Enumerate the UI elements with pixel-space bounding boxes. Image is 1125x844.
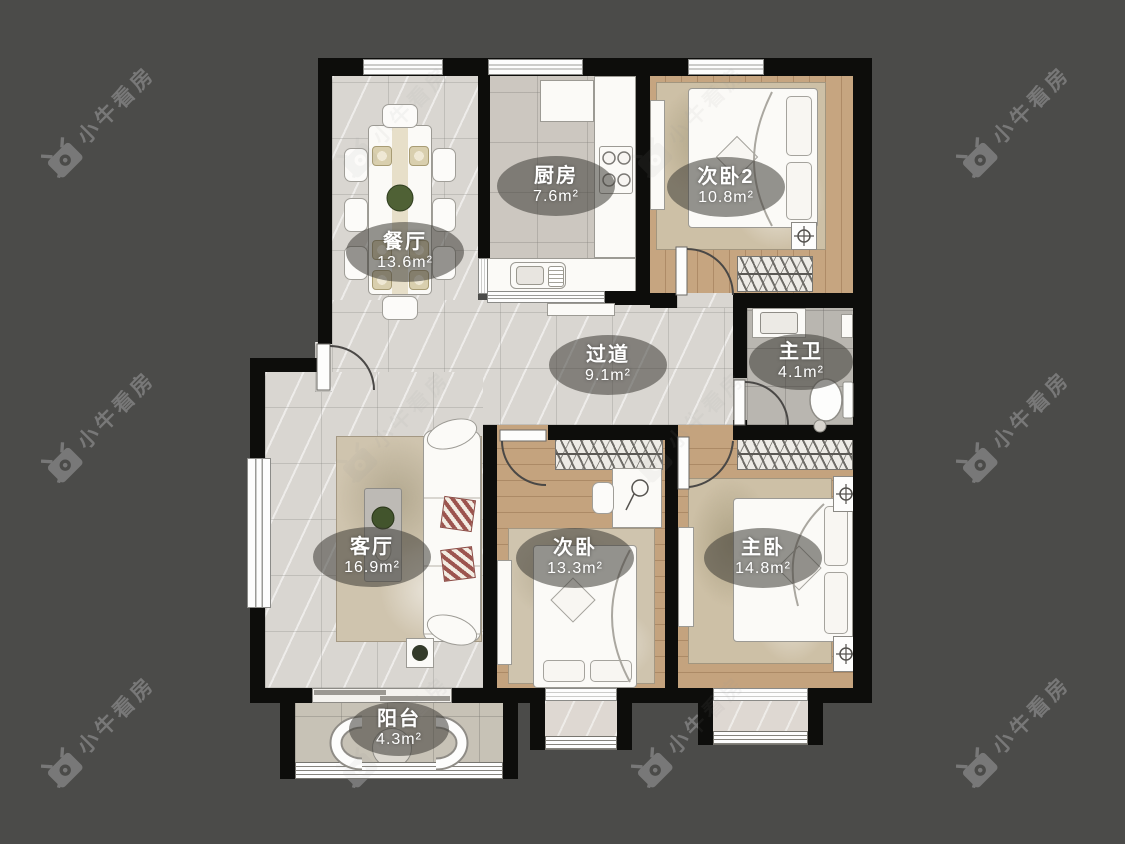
kitchen-sink-bowl — [516, 266, 544, 285]
floor-bedroom2-door-gap — [677, 293, 733, 308]
room-label-hallway: 过道 9.1m² — [549, 335, 667, 395]
watermark: 小牛看房 — [36, 361, 165, 490]
watermark-text: 小牛看房 — [985, 58, 1077, 150]
room-name: 主卫 — [779, 341, 823, 363]
wall-bedroom2-bottom — [650, 293, 677, 308]
pillow — [824, 506, 848, 566]
wall-bath-top — [733, 293, 853, 308]
floor-second-bedroom-door-gap — [497, 425, 548, 440]
window-kitchen — [488, 59, 583, 75]
cabinet-second-bedroom — [497, 560, 512, 665]
pillow — [824, 572, 848, 634]
kitchen-door-threshold — [547, 303, 615, 316]
room-name: 厨房 — [534, 165, 578, 187]
room-area: 7.6m² — [533, 187, 579, 206]
room-area: 14.8m² — [735, 559, 791, 578]
watermark: 小牛看房 — [951, 56, 1080, 185]
room-area: 4.1m² — [778, 363, 824, 382]
bay-window-1-rail — [545, 736, 617, 750]
place-setting — [409, 146, 429, 166]
room-label-second-bedroom: 次卧 13.3m² — [516, 528, 634, 588]
floorplan-canvas: 小牛看房小牛看房小牛看房小牛看房小牛看房小牛看房小牛看房小牛看房小牛看房小牛看房… — [0, 0, 1125, 844]
room-name: 客厅 — [350, 536, 394, 558]
watermark: 小牛看房 — [36, 666, 165, 795]
wardrobe-master-bedroom — [737, 437, 853, 470]
room-name: 次卧2 — [697, 166, 754, 188]
room-label-dining: 餐厅 13.6m² — [346, 222, 464, 282]
bay-window-2-rail — [713, 731, 808, 745]
dining-chair — [432, 148, 456, 182]
window-living-left — [247, 458, 271, 608]
room-name: 餐厅 — [383, 231, 427, 253]
glass-partition-kitchen — [478, 258, 488, 294]
wall-living-secondbedroom — [483, 440, 497, 703]
room-area: 10.8m² — [698, 188, 754, 207]
wall-dining-kitchen — [478, 58, 490, 258]
pillow — [786, 162, 812, 220]
kitchen-dish-rack — [548, 266, 564, 287]
wall-bay1-left — [530, 688, 545, 750]
room-area: 13.6m² — [377, 253, 433, 272]
wall-bay2-right — [808, 688, 823, 745]
balcony-window-rail — [295, 762, 503, 779]
room-area: 9.1m² — [585, 366, 631, 385]
wall-balcony-left — [280, 700, 295, 779]
balcony-sliding-door-panel — [314, 690, 386, 695]
room-name: 过道 — [586, 344, 630, 366]
wall-right — [853, 58, 872, 703]
bath-sink — [760, 312, 798, 334]
wall-bay1-right — [617, 688, 632, 750]
pillow — [590, 660, 632, 682]
floor-plant-frame — [406, 638, 434, 668]
room-label-master-bedroom: 主卧 14.8m² — [704, 528, 822, 588]
bath-shower-fixture — [841, 314, 853, 338]
bay-window-1-sill — [545, 688, 617, 701]
floor-bay-window-1 — [545, 700, 617, 737]
sofa — [423, 430, 481, 642]
throw-pillow — [440, 546, 476, 582]
dining-chair — [382, 296, 418, 320]
watermark-text: 小牛看房 — [70, 58, 162, 150]
pillow — [786, 96, 812, 156]
watermark: 小牛看房 — [951, 361, 1080, 490]
wall-balcony-right — [503, 700, 518, 779]
watermark: 小牛看房 — [36, 56, 165, 185]
kitchen-fridge — [540, 80, 594, 122]
wall-hall-bottom-a — [483, 425, 497, 440]
room-area: 13.3m² — [547, 559, 603, 578]
room-name: 主卧 — [741, 537, 785, 559]
desk-chair — [592, 482, 614, 514]
radiator — [791, 222, 817, 250]
room-area: 16.9m² — [344, 558, 400, 577]
room-label-living: 客厅 16.9m² — [313, 527, 431, 587]
watermark-text: 小牛看房 — [985, 363, 1077, 455]
pillow — [543, 660, 585, 682]
throw-pillow — [440, 496, 476, 532]
room-label-bedroom2: 次卧2 10.8m² — [667, 157, 785, 217]
room-label-master-bath: 主卫 4.1m² — [749, 334, 853, 390]
room-label-kitchen: 厨房 7.6m² — [497, 156, 615, 216]
watermark: 小牛看房 — [951, 666, 1080, 795]
watermark-text: 小牛看房 — [985, 668, 1077, 760]
glass-partition-kitchen-bottom — [487, 291, 605, 303]
wall-left-upper — [318, 58, 332, 344]
wall-bottom-right — [823, 688, 872, 703]
wall-bedroom-divider — [665, 440, 678, 688]
watermark-text: 小牛看房 — [70, 668, 162, 760]
radiator-icon — [794, 226, 814, 246]
watermark-text: 小牛看房 — [70, 363, 162, 455]
room-name: 次卧 — [553, 537, 597, 559]
dining-chair — [344, 198, 368, 232]
wall-bath-bottom — [733, 425, 872, 440]
wall-bottom-mid — [632, 688, 698, 703]
cabinet-master-bedroom — [678, 527, 694, 627]
wardrobe-bedroom2 — [737, 256, 813, 292]
